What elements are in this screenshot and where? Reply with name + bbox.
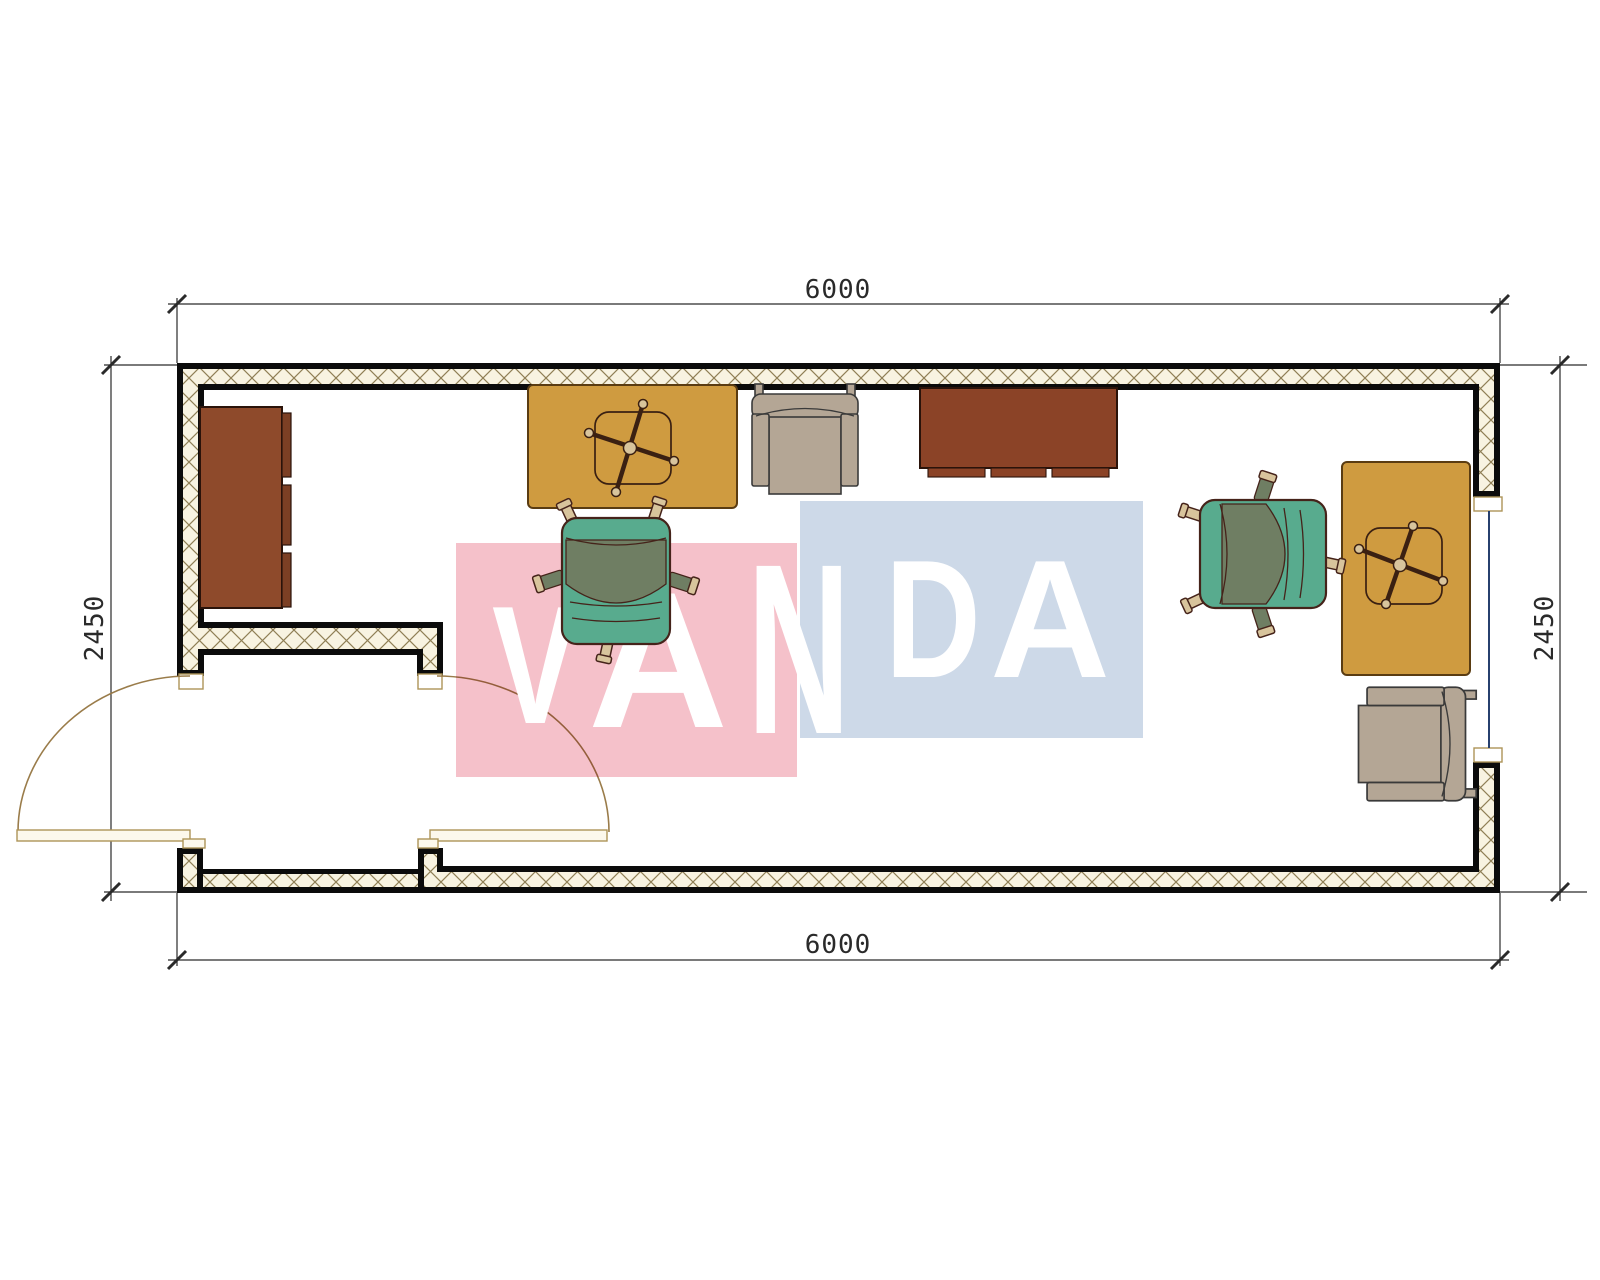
desk-1 xyxy=(528,385,737,508)
desk-2 xyxy=(1342,462,1470,675)
dim-label-right: 2450 xyxy=(1530,595,1560,662)
window-right xyxy=(1474,497,1502,762)
door-hinge-right xyxy=(418,839,438,848)
dimension-bottom: 6000 xyxy=(168,893,1509,969)
watermark-letter: D xyxy=(885,526,981,714)
sideboard xyxy=(920,388,1117,477)
armchair-right xyxy=(1359,687,1477,800)
dim-label-left: 2450 xyxy=(80,595,110,662)
office-chair-right xyxy=(1178,470,1346,638)
door-leaf-left xyxy=(17,830,190,841)
door-hinge-left xyxy=(183,839,205,848)
watermark-letter: A xyxy=(990,526,1110,713)
dim-label-top: 6000 xyxy=(805,275,872,305)
window-frame-bottom xyxy=(1474,748,1502,762)
cabinet xyxy=(200,407,291,608)
floor-plan-drawing: 6000 6000 2450 2450 xyxy=(0,0,1600,1280)
dimension-left: 2450 xyxy=(80,356,177,901)
dimension-top: 6000 xyxy=(168,275,1509,363)
armchair-top xyxy=(752,384,858,494)
floor-plan-canvas: 6000 6000 2450 2450 xyxy=(0,0,1600,1280)
door-swing-left xyxy=(18,676,190,832)
window-frame-top xyxy=(1474,497,1502,511)
dim-label-bottom: 6000 xyxy=(805,930,872,960)
dimension-right: 2450 xyxy=(1500,356,1587,901)
watermark-letter: N xyxy=(747,514,851,786)
door-leaf-right xyxy=(430,830,607,841)
